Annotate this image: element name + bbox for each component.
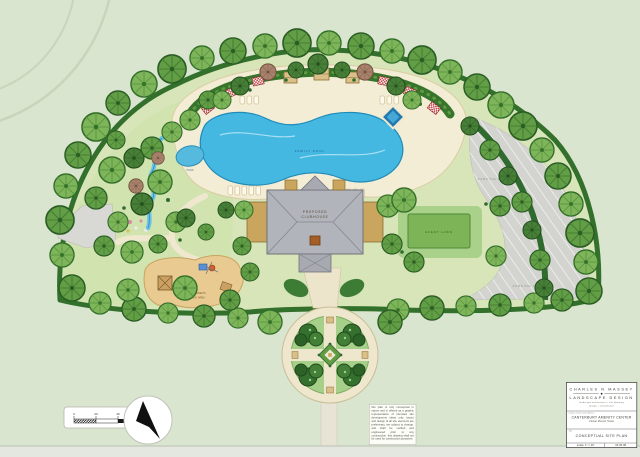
firm-subline2: design + consultation: [589, 405, 614, 408]
firm-logo-icon: ◆: [601, 392, 603, 395]
project-name: CANTERBURY AMENITY CENTER: [569, 415, 635, 419]
title-block: CHARLES N MASSEY ◆ LANDSCAPE DESIGN land…: [566, 382, 637, 448]
north-arrow-icon: [124, 396, 172, 444]
firm-name-line2: LANDSCAPE DESIGN: [569, 396, 633, 400]
entry-drive: [321, 402, 337, 447]
project-section: project name and address CANTERBURY AMEN…: [567, 411, 637, 429]
firm-section: CHARLES N MASSEY ◆ LANDSCAPE DESIGN land…: [567, 383, 637, 411]
scale-cell: scale: 1" = 20': [567, 443, 605, 447]
sheet-title-label: title: [569, 430, 572, 432]
firm-rule: ◆: [573, 392, 630, 395]
pond-label: POND: [187, 169, 194, 172]
family-pool-label: FAMILY POOL: [295, 149, 326, 153]
scale-tick-40: 40: [116, 412, 120, 416]
event-lawn: EVENT LAWN: [398, 206, 482, 258]
scale-date-row: scale: 1" = 20' 03.05.08: [567, 443, 637, 447]
sheet-title-section: title CONCEPTUAL SITE PLAN: [567, 429, 637, 443]
scale-tick-20: 20: [94, 412, 98, 416]
disclaimer-note: this plan is only conceptual in nature a…: [369, 404, 416, 445]
event-lawn-label: EVENT LAWN: [425, 230, 452, 234]
garden-roundabout: [282, 307, 378, 403]
plan-sheet: FAMILY POOL POND EVENT LAWN PARKING LOT …: [0, 0, 640, 457]
swimming-pool: FAMILY POOL: [200, 112, 403, 185]
date-cell: 03.05.08: [605, 443, 637, 447]
project-location: Flower Mound, Texas: [569, 420, 635, 423]
clubhouse-label-line2: CLUBHOUSE: [301, 215, 328, 219]
firm-subline1: landscape architecture + site planning: [579, 401, 624, 404]
site-plan-drawing: FAMILY POOL POND EVENT LAWN PARKING LOT …: [0, 0, 640, 457]
bottom-road: [0, 446, 640, 457]
firm-name-line1: CHARLES N MASSEY: [569, 387, 633, 391]
entry-feature: [310, 236, 320, 245]
clubhouse-label-line1: PROPOSED: [303, 210, 327, 214]
project-label: project name and address: [569, 412, 594, 414]
sheet-title: CONCEPTUAL SITE PLAN: [569, 434, 635, 438]
disclaimer-text: this plan is only conceptual in nature a…: [371, 406, 413, 441]
